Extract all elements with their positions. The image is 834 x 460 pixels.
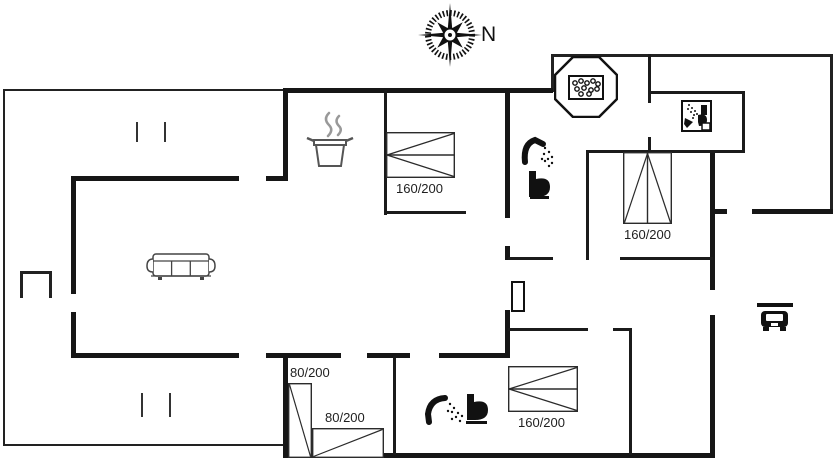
wall-segment xyxy=(830,54,833,214)
wall-segment xyxy=(3,444,288,446)
hot-tub-icon xyxy=(554,56,618,118)
single-bed-west-lower xyxy=(312,428,384,458)
wall-segment xyxy=(266,353,341,358)
wall-segment xyxy=(586,150,589,260)
floor-plan-canvas: N xyxy=(0,0,834,460)
wall-segment xyxy=(439,353,508,358)
shower-toilet-icon xyxy=(518,134,560,202)
bed-size-label: 160/200 xyxy=(624,227,671,242)
wall-segment xyxy=(367,353,410,358)
boxed-shower-toilet-icon xyxy=(681,100,712,132)
wall-segment xyxy=(505,90,510,218)
wall-segment xyxy=(629,328,632,455)
post-mark xyxy=(169,393,171,417)
wall-segment xyxy=(710,209,727,214)
wall-segment xyxy=(283,88,553,93)
wall-segment xyxy=(3,89,286,91)
wall-segment xyxy=(71,353,239,358)
wall-segment xyxy=(742,91,745,153)
compass-rose-icon xyxy=(418,3,482,67)
door-leaf xyxy=(511,281,525,312)
side-table-icon xyxy=(20,271,52,298)
wall-segment xyxy=(648,91,745,94)
wall-segment xyxy=(505,310,510,358)
bed-size-label: 160/200 xyxy=(396,181,443,196)
wall-segment xyxy=(710,150,715,290)
bed-size-label: 80/200 xyxy=(325,410,365,425)
cooking-pot-icon xyxy=(306,110,354,172)
double-bed-east xyxy=(623,152,672,224)
wall-segment xyxy=(71,312,76,358)
bed-size-label: 160/200 xyxy=(518,415,565,430)
wall-segment xyxy=(752,209,833,214)
single-bed-west-upper xyxy=(288,383,312,458)
wall-segment xyxy=(283,88,288,180)
bed-size-label: 80/200 xyxy=(290,365,330,380)
double-bed-south xyxy=(508,366,578,412)
wall-segment xyxy=(393,356,396,455)
shower-toilet-icon xyxy=(419,386,493,432)
post-mark xyxy=(136,122,138,142)
wall-segment xyxy=(710,315,715,458)
wall-segment xyxy=(613,328,632,331)
wall-segment xyxy=(508,328,588,331)
sofa-icon xyxy=(146,249,216,285)
wall-segment xyxy=(508,257,553,260)
post-mark xyxy=(141,393,143,417)
wall-segment xyxy=(266,176,288,181)
double-bed-north xyxy=(386,132,455,178)
north-label: N xyxy=(481,23,496,47)
wall-segment xyxy=(620,257,713,260)
wall-segment xyxy=(648,54,651,103)
wall-segment xyxy=(71,176,76,294)
post-mark xyxy=(164,122,166,142)
wall-segment xyxy=(384,211,466,214)
carport-car-icon xyxy=(757,301,793,332)
wall-segment xyxy=(71,176,239,181)
wall-segment xyxy=(3,89,5,446)
